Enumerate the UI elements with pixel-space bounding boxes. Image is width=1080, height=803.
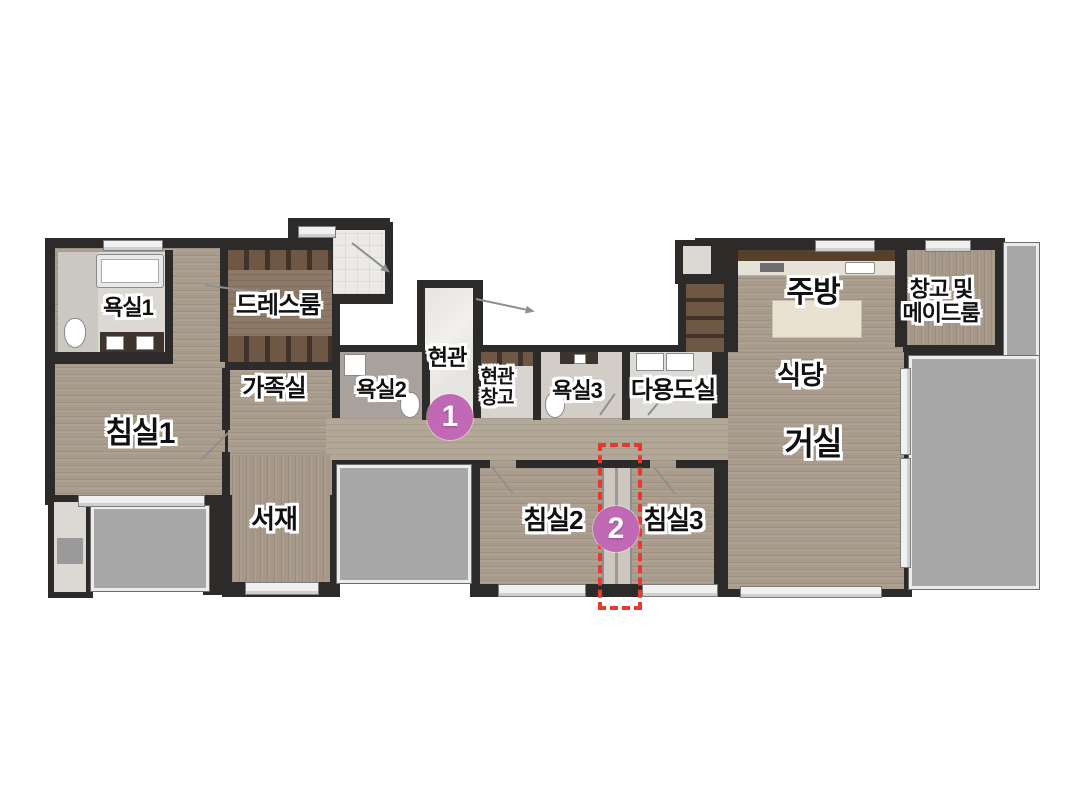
- room-label-bath3: 욕실3: [552, 379, 602, 403]
- window-bedroom1-bottom: [78, 495, 205, 507]
- dressroom-closet-bottom: [228, 336, 332, 362]
- window-living-right-lower: [900, 458, 911, 568]
- room-label-kitchen: 주방: [786, 277, 839, 309]
- wall-hall-dressroom: [220, 248, 228, 362]
- wall-bath3-utility: [622, 350, 630, 420]
- wall-bedroom1-family-upper: [222, 368, 230, 430]
- balcony-middle: [336, 464, 472, 584]
- cooktop-icon: [760, 263, 784, 272]
- room-label-bedroom2: 침실2: [523, 506, 582, 534]
- marker-1: 1: [427, 394, 473, 440]
- room-label-entrance-storage: 현관 창고: [481, 367, 514, 408]
- wall-bedroom1-family-lower: [222, 452, 230, 495]
- marker-1-number: 1: [442, 400, 459, 434]
- pantry-shelves: [686, 284, 724, 352]
- balcony-right-column: [1003, 242, 1040, 362]
- room-label-bath2: 욕실2: [356, 378, 406, 402]
- storage-maid-line1: 창고 및: [903, 277, 980, 301]
- sink1a-icon: [106, 336, 124, 350]
- washer1-icon: [636, 353, 664, 371]
- pantry-foyer-tile: [683, 246, 711, 274]
- wall-storage-bath3: [533, 350, 541, 420]
- room-label-bedroom1: 침실1: [106, 418, 175, 450]
- window-living-right-upper: [900, 368, 911, 455]
- bathtub-icon: [96, 254, 164, 288]
- corridor-connector: [326, 418, 342, 460]
- window-maid-top: [925, 240, 971, 252]
- room-label-dressroom: 드레스룸: [236, 293, 320, 319]
- marker-2: 2: [593, 506, 639, 552]
- room-label-bath1: 욕실1: [103, 296, 153, 320]
- window-kitchen-top: [815, 240, 875, 252]
- entrance-storage-line2: 창고: [481, 388, 514, 409]
- room-label-entrance: 현관: [428, 346, 466, 370]
- corridor-floor: [340, 418, 730, 460]
- window-bath1-top: [103, 240, 163, 251]
- sink3-icon: [574, 354, 586, 364]
- room-label-storage-maid: 창고 및 메이드룸: [903, 277, 980, 325]
- window-living-bottom: [740, 586, 882, 598]
- window-protrusion: [298, 226, 336, 238]
- floor-plan: 욕실1 드레스룸 가족실 침실1 욕실2 현관 현관 창고 욕실3 다용도실 주…: [0, 0, 1080, 803]
- storage-maid-line2: 메이드룸: [903, 301, 980, 325]
- washer2-icon: [666, 353, 694, 371]
- window-study-bottom: [245, 582, 319, 595]
- wall-bath1-hall: [165, 250, 173, 352]
- wall-below-bath1: [55, 352, 173, 364]
- room-label-utility: 다용도실: [631, 378, 715, 404]
- shower2-icon: [344, 354, 366, 376]
- kitchen-sink-icon: [845, 262, 875, 274]
- dressroom-closet-top: [228, 250, 332, 270]
- toilet1-icon: [64, 318, 86, 348]
- balcony-right-main: [908, 355, 1040, 590]
- marker-2-number: 2: [608, 512, 625, 546]
- entrance-door-arrow: [476, 298, 527, 311]
- sink1b-icon: [136, 336, 154, 350]
- wall-below-dressroom: [228, 362, 332, 370]
- window-bedroom2-bottom: [498, 584, 586, 597]
- room-label-study: 서재: [251, 505, 297, 533]
- room-label-family-room: 가족실: [242, 376, 305, 402]
- room-label-living: 거실: [785, 427, 842, 462]
- entrance-storage-line1: 현관: [481, 367, 514, 388]
- balcony-left: [90, 505, 210, 592]
- room-label-bedroom3: 침실3: [643, 506, 702, 534]
- shower-unit-box: [57, 538, 83, 564]
- entrance-storage-closet: [481, 352, 533, 366]
- room-label-dining: 식당: [777, 361, 823, 389]
- window-bedroom3-bottom: [642, 584, 718, 597]
